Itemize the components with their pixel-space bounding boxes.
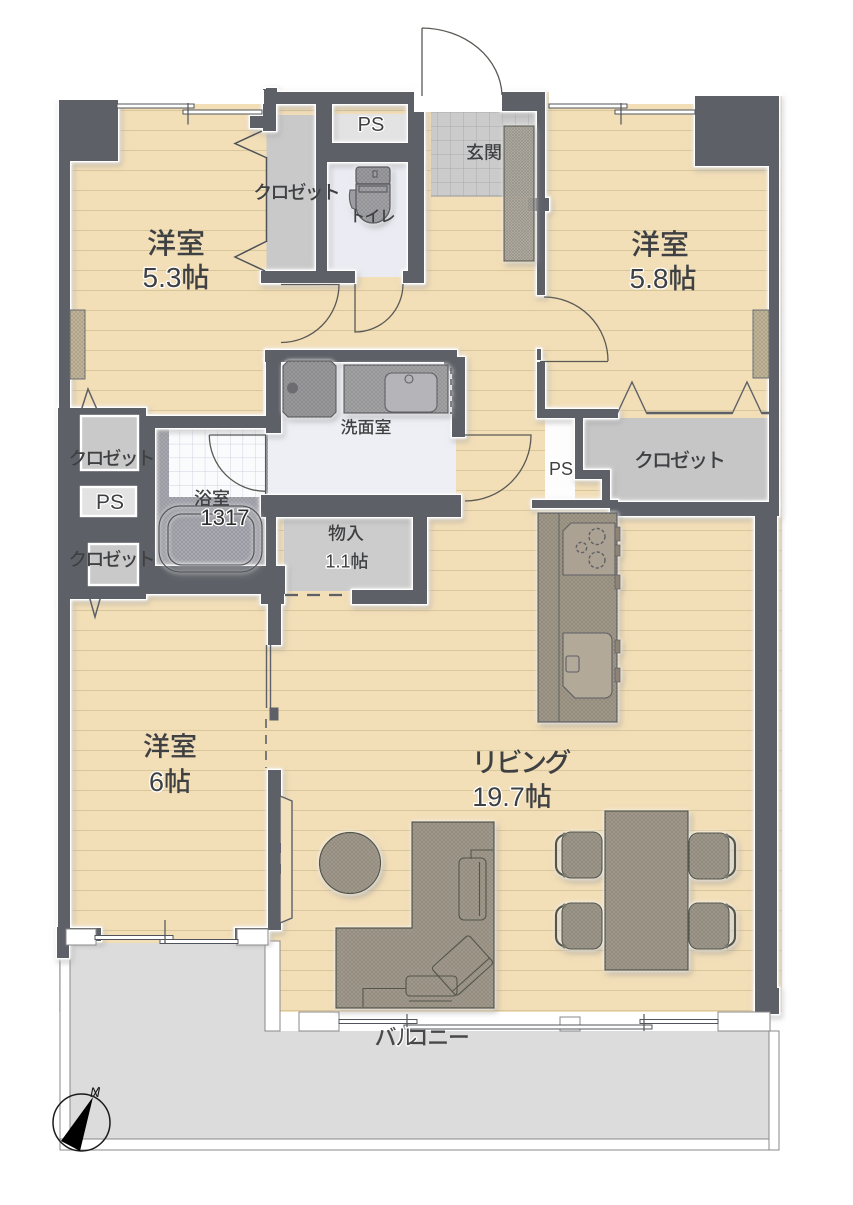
svg-text:6: 6 bbox=[149, 767, 164, 797]
svg-text:5.8: 5.8 bbox=[630, 263, 669, 294]
svg-text:1317: 1317 bbox=[201, 505, 250, 530]
svg-text:19.7: 19.7 bbox=[472, 782, 525, 812]
svg-text:PS: PS bbox=[358, 114, 385, 136]
svg-text:N: N bbox=[90, 1084, 101, 1100]
svg-text:1.1: 1.1 bbox=[326, 552, 351, 572]
svg-text:5.3: 5.3 bbox=[143, 262, 182, 293]
svg-text:PS: PS bbox=[549, 459, 573, 479]
svg-text:PS: PS bbox=[96, 491, 124, 514]
svg-text:ル: ル bbox=[395, 1025, 417, 1050]
